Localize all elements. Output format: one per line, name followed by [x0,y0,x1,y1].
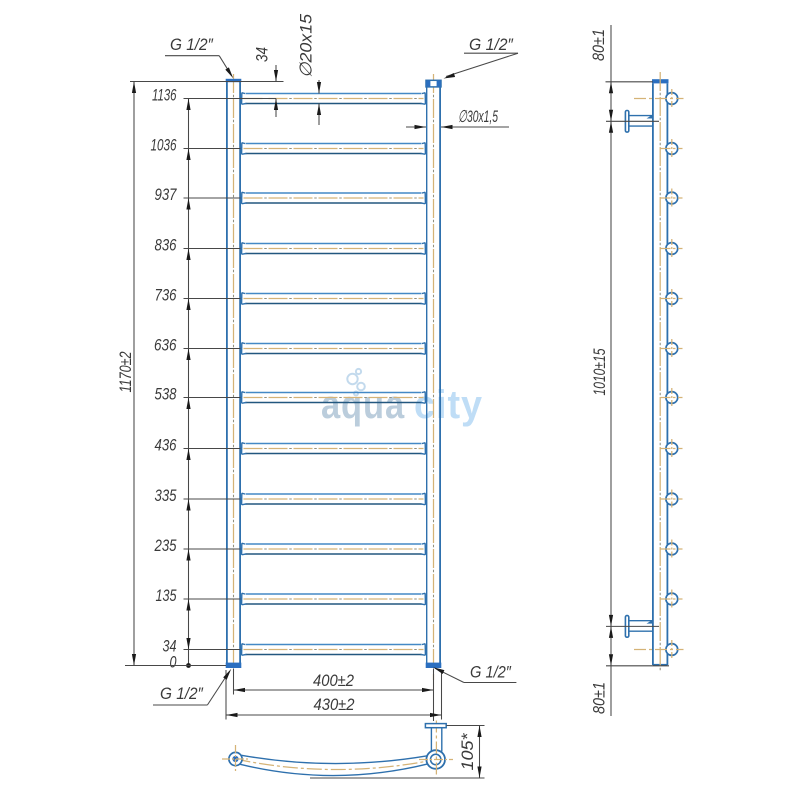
svg-text:235: 235 [154,536,177,555]
svg-text:636: 636 [154,336,177,355]
svg-text:G 1/2″: G 1/2″ [469,35,514,54]
svg-text:135: 135 [156,586,177,605]
svg-text:105*: 105* [458,732,477,770]
svg-text:1036: 1036 [151,136,177,155]
svg-text:1136: 1136 [152,86,177,105]
svg-text:∅20x15: ∅20x15 [297,13,316,78]
svg-text:937: 937 [155,185,177,204]
svg-text:736: 736 [155,286,177,305]
svg-text:400±2: 400±2 [313,671,354,690]
svg-text:G 1/2″: G 1/2″ [170,35,214,54]
svg-text:34: 34 [253,47,272,62]
svg-text:538: 538 [155,385,177,404]
svg-text:G 1/2″: G 1/2″ [160,684,204,703]
svg-text:80±1: 80±1 [590,682,609,714]
svg-text:city: city [414,383,483,427]
svg-text:∅30x1,5: ∅30x1,5 [458,107,498,126]
svg-text:836: 836 [155,236,177,255]
svg-text:1010±15: 1010±15 [590,348,609,395]
svg-text:436: 436 [155,436,177,455]
svg-text:0: 0 [170,652,177,671]
svg-text:335: 335 [155,486,177,505]
svg-text:1170±2: 1170±2 [116,351,135,392]
svg-text:G 1/2″: G 1/2″ [470,663,512,682]
svg-text:80±1: 80±1 [589,29,608,61]
svg-text:430±2: 430±2 [314,695,355,714]
